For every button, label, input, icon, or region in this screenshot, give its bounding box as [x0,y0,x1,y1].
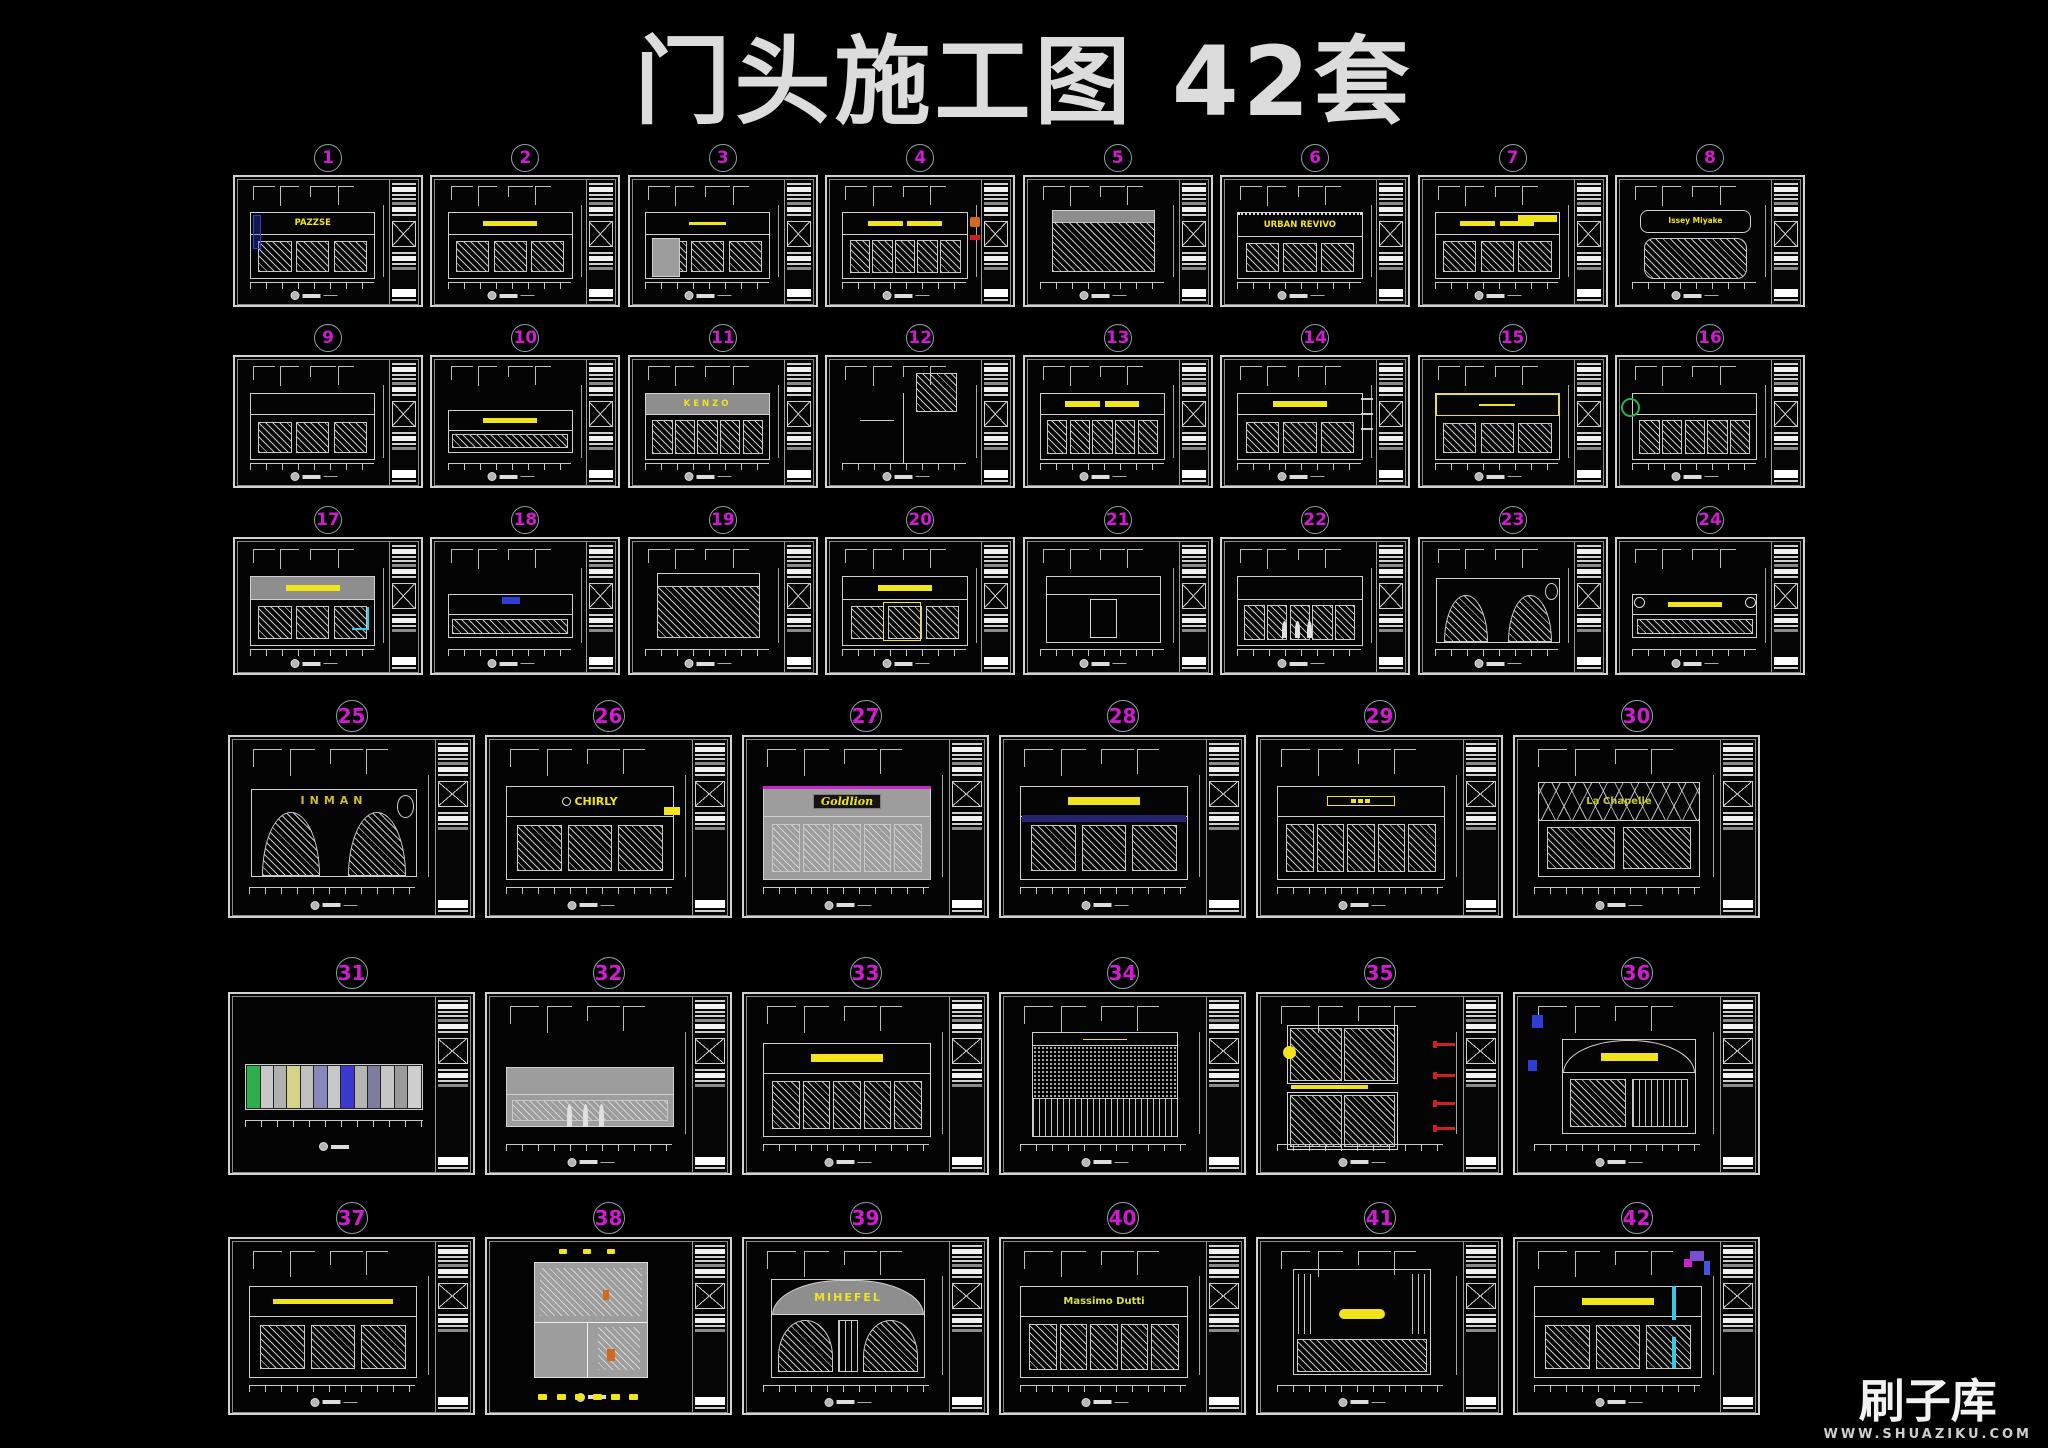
dimension-baseline [1020,887,1186,894]
title-block-bar [1577,387,1601,392]
title-block-bar [589,183,613,185]
drawing-sheet[interactable] [1023,355,1213,488]
window-section [1287,1025,1398,1084]
dimension-line [581,568,582,643]
dimension-line [976,205,977,277]
drawing-sheet[interactable] [1220,537,1410,675]
drawing-number-badge: 33 [850,957,882,989]
sign-band [1033,1033,1176,1046]
drawing-sheet[interactable] [1418,537,1608,675]
sign-band: Goldlion [764,787,930,818]
drawing-sheet[interactable] [999,992,1246,1175]
drawing-number-badge: 35 [1364,957,1396,989]
facade-lower [1238,600,1361,645]
dimension-line [478,549,497,570]
dimension-line [845,366,867,380]
scale-marker-bar [894,294,912,298]
dimension-baseline [1534,1144,1700,1151]
title-block-bar [1182,363,1206,365]
title-block-bar [1577,367,1601,372]
drawing-sheet[interactable] [1418,355,1608,488]
canvas: 门头施工图 42套 1PAZZSE23456URBAN REVIVO78Isse… [0,0,2048,1448]
red-callout [1437,1074,1455,1077]
title-block-bar [1723,1011,1753,1013]
storefront-sign-text: CHIRLY [562,796,617,807]
title-block-bar [1577,564,1601,567]
title-block-bar [438,1167,468,1169]
title-block-bar [1379,183,1403,185]
drawing-art: Goldlion [747,740,949,915]
title-block-bar [1774,443,1798,445]
hatched-panel [926,606,959,639]
title-block-bar [984,560,1008,562]
hatched-panel [1570,1079,1626,1128]
title-block-bar [589,187,613,192]
sheet-frame [232,1241,471,1413]
drawing-art [238,542,389,672]
purple-detail [1704,1261,1710,1275]
drawing-art [435,542,586,672]
title-block-bar [1182,194,1206,196]
dimension-line [648,186,670,199]
title-block-bar [1577,207,1601,212]
dimension-baseline [1040,282,1164,289]
sign-band [250,1287,416,1317]
title-block-bar [392,564,416,567]
end-circle [1634,597,1645,608]
drawing-sheet[interactable] [825,175,1015,307]
dimension-line [1371,385,1372,458]
dimension-line [1495,366,1520,377]
title-block-bar [589,432,613,434]
scale-marker-dot [1080,472,1089,481]
title-block-bar [1379,569,1403,574]
hatched-panel [258,606,291,639]
title-block-bar [392,267,416,270]
title-block-bar [695,823,725,825]
yellow-stamp [607,1249,615,1254]
sign-band [449,213,572,235]
title-block-bar [787,394,811,396]
scale-marker-bar [302,475,320,479]
storefront-sign-bar [483,221,537,226]
title-block-bar [1723,758,1753,760]
title-block-bar [392,657,416,665]
storefront-facade [1032,1032,1177,1137]
hatched-panel [838,1320,857,1373]
drawing-cell: 7 [1418,175,1608,307]
dimension-line [1137,1006,1158,1032]
drawing-sheet[interactable]: Issey Miyake [1615,175,1805,307]
scale-marker [311,901,358,910]
drawing-sheet[interactable]: PAZZSE [233,175,423,307]
hatched-panel [296,606,329,639]
title-block-bar [1577,382,1601,385]
title-block-bar [1723,1167,1753,1169]
drawing-sheet[interactable] [825,537,1015,675]
title-block-bar [1577,378,1601,380]
sheet-title-block [784,360,813,485]
scale-marker-bar [1092,475,1110,479]
sign-glyph-mark [1358,799,1363,803]
drawing-sheet[interactable] [430,355,620,488]
drawing-sheet[interactable] [742,992,989,1175]
green-logo-mark [1621,398,1640,417]
dimension-baseline [250,463,374,470]
hatched-panel [917,240,937,273]
title-block-bar [1209,812,1239,814]
title-block-xbox [438,1283,468,1309]
drawing-sheet[interactable]: INMAN [228,735,475,918]
title-block-bar [589,549,613,554]
dimension-baseline [1534,1385,1700,1392]
arched-awning [348,812,406,876]
drawing-sheet[interactable]: Goldlion [742,735,989,918]
drawing-number-badge: 6 [1301,144,1329,172]
sign-band [251,394,374,416]
plan-block [328,1066,340,1108]
title-block-bar [1774,394,1798,396]
title-block-bar [1209,1024,1239,1029]
dimension-line [253,1251,282,1269]
title-block-bar [1723,1015,1753,1017]
title-block-xbox [589,583,613,609]
title-block-bar [1723,1019,1753,1022]
title-block-bar [1379,625,1403,627]
sheet-title-block [435,997,470,1172]
scale-marker [1080,472,1127,481]
dimension-line [478,186,497,206]
dimension-line [253,749,282,768]
drawing-sheet[interactable] [1513,1237,1760,1415]
magenta-stripe [763,786,931,789]
dimension-baseline [250,282,374,289]
hatched-panel [1547,827,1615,869]
drawing-sheet[interactable] [485,1237,732,1415]
dimension-line [338,186,354,204]
title-block-bar [1209,743,1239,745]
title-block-xbox [1209,781,1239,807]
title-block-bar [589,207,613,212]
dimension-line [1267,366,1286,386]
title-block-bar [1209,1314,1239,1316]
title-block-bar [984,263,1008,265]
drawing-sheet[interactable] [485,992,732,1175]
drawing-sheet[interactable] [233,537,423,675]
storefront-facade [1435,393,1560,461]
title-block-bar [1182,207,1206,212]
drawing-sheet[interactable] [628,175,818,307]
facade-lower [772,1315,924,1377]
drawing-sheet[interactable] [1615,355,1805,488]
title-block-bar [984,564,1008,567]
title-block-bar [984,267,1008,270]
title-block-bar [438,1031,468,1033]
drawing-sheet[interactable] [1418,175,1608,307]
hatched-region [598,1327,640,1370]
title-block-bar [1379,667,1403,669]
storefront-facade: PAZZSE [250,212,375,279]
dimension-baseline [1632,649,1756,656]
title-block-bar [1723,762,1753,765]
dimension-line [1495,186,1520,197]
title-block-bar [984,363,1008,365]
drawing-cell: 3 [628,175,818,307]
title-block-bar [1182,447,1206,450]
drawing-sheet[interactable] [1256,1237,1503,1415]
title-block-bar [589,556,613,558]
title-block-bar [1577,202,1601,205]
title-block-bar [1209,910,1239,912]
drawing-cell: 30La Chapelle [1513,735,1760,918]
title-block-bar [1577,363,1601,365]
drawing-sheet[interactable] [1023,175,1213,307]
title-block-xbox [695,1283,725,1309]
drawing-sheet[interactable] [1023,537,1213,675]
title-block-bar [1182,560,1206,562]
title-block-bar [392,629,416,632]
drawing-art [1518,1242,1720,1412]
hatched-panel [1033,1099,1176,1136]
drawing-sheet[interactable] [233,355,423,488]
title-block-bar [392,569,416,574]
dimension-line [510,1006,539,1025]
arched-door [863,1320,917,1373]
sheet-title-block [1463,1242,1498,1412]
dimension-line [1061,1006,1086,1033]
title-block-bar [1723,1264,1753,1267]
title-block-bar [1379,263,1403,265]
title-block-bar [787,443,811,445]
title-block-bar [1379,629,1403,632]
storefront-facade: Issey Miyake [1640,210,1752,279]
title-block-bar [1774,363,1798,365]
drawing-sheet[interactable] [825,355,1015,488]
scale-marker [1277,291,1324,300]
title-block-bar [392,432,416,434]
sheet-title-block [1720,740,1755,915]
drawing-sheet[interactable]: La Chapelle [1513,735,1760,918]
title-block-bar [952,1031,982,1033]
title-block-bar [1379,378,1403,380]
dimension-line [1061,1251,1086,1278]
scale-marker-dot [311,1398,320,1407]
title-block-bar [695,1397,725,1405]
hatched-panel [940,240,960,273]
sheet-title-block [1376,180,1405,304]
dimension-line [508,366,533,377]
dimension-line [1495,549,1520,560]
drawing-sheet[interactable] [1220,355,1410,488]
facade-lower [449,235,572,278]
scale-marker [311,1398,358,1407]
storefront-sign-bar [1273,401,1327,406]
arched-sign-band: MIHEFEL [772,1280,924,1315]
drawing-cell: 41 [1256,1237,1503,1415]
drawing-sheet[interactable] [628,537,818,675]
hatched-pane [1290,1095,1342,1148]
dimension-baseline [763,1385,929,1392]
storefront-sign-bar [1668,602,1722,607]
drawing-sheet[interactable] [1256,992,1503,1175]
drawing-sheet[interactable]: CHIRLY [485,735,732,918]
title-block-bar [787,256,811,261]
scale-marker [1672,659,1719,668]
title-block-bar [1723,1269,1753,1274]
title-block-bar [1466,900,1496,908]
storefront-facade [448,410,573,453]
drawing-cell: 35 [1256,992,1503,1175]
facade-lower [1640,238,1752,279]
purple-detail [1690,1251,1704,1261]
title-block-bar [589,252,613,254]
speckled-panel [1033,1046,1176,1099]
title-block-bar [952,1260,982,1262]
dimension-line [366,749,387,775]
title-block-bar [438,1314,468,1316]
title-block-bar [1723,747,1753,752]
title-block-bar [952,1019,982,1022]
scale-marker-dot [1339,1158,1348,1167]
hatched-panel [1481,423,1514,453]
title-block-bar [1774,252,1798,254]
dimension-line [1199,1032,1200,1134]
detail-line [1361,398,1373,400]
drawing-sheet[interactable] [228,1237,475,1415]
scale-marker-line [344,905,358,906]
drawing-number-badge: 24 [1696,506,1724,534]
title-block-bar [1466,1069,1496,1071]
drawing-number-badge: 31 [336,957,368,989]
dimension-line [1575,1251,1600,1278]
title-block-bar [1209,1249,1239,1254]
title-block-bar [1774,207,1798,212]
drawing-cell: 5 [1023,175,1213,307]
drawing-sheet[interactable]: MIHEFEL [742,1237,989,1415]
storefront-facade [842,212,967,279]
title-block-bar [1723,823,1753,825]
mannequin-figure [1307,621,1312,638]
drawing-number-badge: 26 [593,700,625,732]
dimension-line [451,549,473,563]
title-block-bar [984,299,1008,301]
drawing-sheet[interactable] [1615,537,1805,675]
hatched-panel [1623,827,1691,869]
sheet-frame: Goldlion [746,739,985,916]
sign-band [449,411,572,431]
drawing-sheet[interactable]: Massimo Dutti [999,1237,1246,1415]
hatched-panel [1321,422,1354,453]
title-block-bar [1209,1000,1239,1002]
title-block-bar [984,183,1008,185]
scale-marker [1596,1158,1643,1167]
title-block-bar [1466,1084,1496,1087]
title-block-bar [695,1069,725,1071]
hatched-panel [512,1100,668,1120]
dimension-line [1662,366,1681,386]
title-block-xbox [392,583,416,609]
title-block-bar [438,1269,468,1274]
drawing-sheet[interactable] [430,537,620,675]
drawing-cell: 38 [485,1237,732,1415]
hatched-panel [743,420,763,454]
scale-marker-dot [1082,901,1091,910]
drawing-art [1028,360,1179,485]
drawing-sheet[interactable] [1513,992,1760,1175]
scale-marker-dot [1672,472,1681,481]
drawing-sheet[interactable] [228,992,475,1175]
sheet-frame [1422,359,1604,486]
title-block-bar [1466,743,1496,745]
title-block-bar [984,549,1008,554]
title-block-bar [1466,1073,1496,1078]
title-block-bar [392,367,416,372]
title-block-bar [392,252,416,254]
drawing-cell: 31 [228,992,475,1175]
scale-marker-dot [290,291,299,300]
title-block-bar [589,576,613,578]
drawing-sheet[interactable] [430,175,620,307]
dimension-baseline [245,1120,423,1127]
title-block-bar [1723,1157,1753,1165]
scale-marker-dot [1082,1158,1091,1167]
yellow-stamp [593,1394,602,1400]
title-block-bar [1577,183,1601,185]
scale-marker-dot [1672,659,1681,668]
yellow-stamp [629,1394,638,1400]
title-block-bar [1379,289,1403,297]
title-block-xbox [438,781,468,807]
facade-lower [764,1074,930,1136]
dimension-line [942,775,943,877]
title-block-bar [1577,614,1601,616]
sign-band [1041,394,1164,416]
sign-band [1278,787,1444,818]
sheet-title-block [949,997,984,1172]
scale-marker-line [323,295,337,296]
cyan-accent-line [352,607,369,630]
hatched-panel [1138,420,1158,454]
title-block-bar [695,1407,725,1409]
dimension-line [1720,186,1736,204]
drawing-sheet[interactable] [999,735,1246,918]
hatched-panel [1070,420,1090,454]
drawing-sheet[interactable]: KENZO [628,355,818,488]
sign-band [1052,210,1155,223]
drawing-sheet[interactable]: URBAN REVIVO [1220,175,1410,307]
dimension-line [1662,186,1681,206]
drawing-sheet[interactable] [1256,735,1503,918]
title-block-bar [1466,910,1496,912]
scale-marker-line [520,663,534,664]
hatched-panel [1246,243,1279,272]
title-block-bar [952,1080,982,1082]
arched-awning [262,812,320,876]
sheet-frame: CHIRLY [489,739,728,916]
scale-marker-bar [1094,903,1112,907]
dimension-line [280,549,299,570]
title-block-bar [1379,549,1403,554]
dimension-line [705,549,730,560]
title-block-bar [1209,1031,1239,1033]
title-block-xbox [1577,401,1601,427]
plan-line [535,1322,646,1323]
title-block-bar [787,480,811,482]
dimension-line [1651,1006,1672,1032]
title-block-bar [438,747,468,752]
title-block-bar [1209,758,1239,760]
scale-marker-dot [882,291,891,300]
